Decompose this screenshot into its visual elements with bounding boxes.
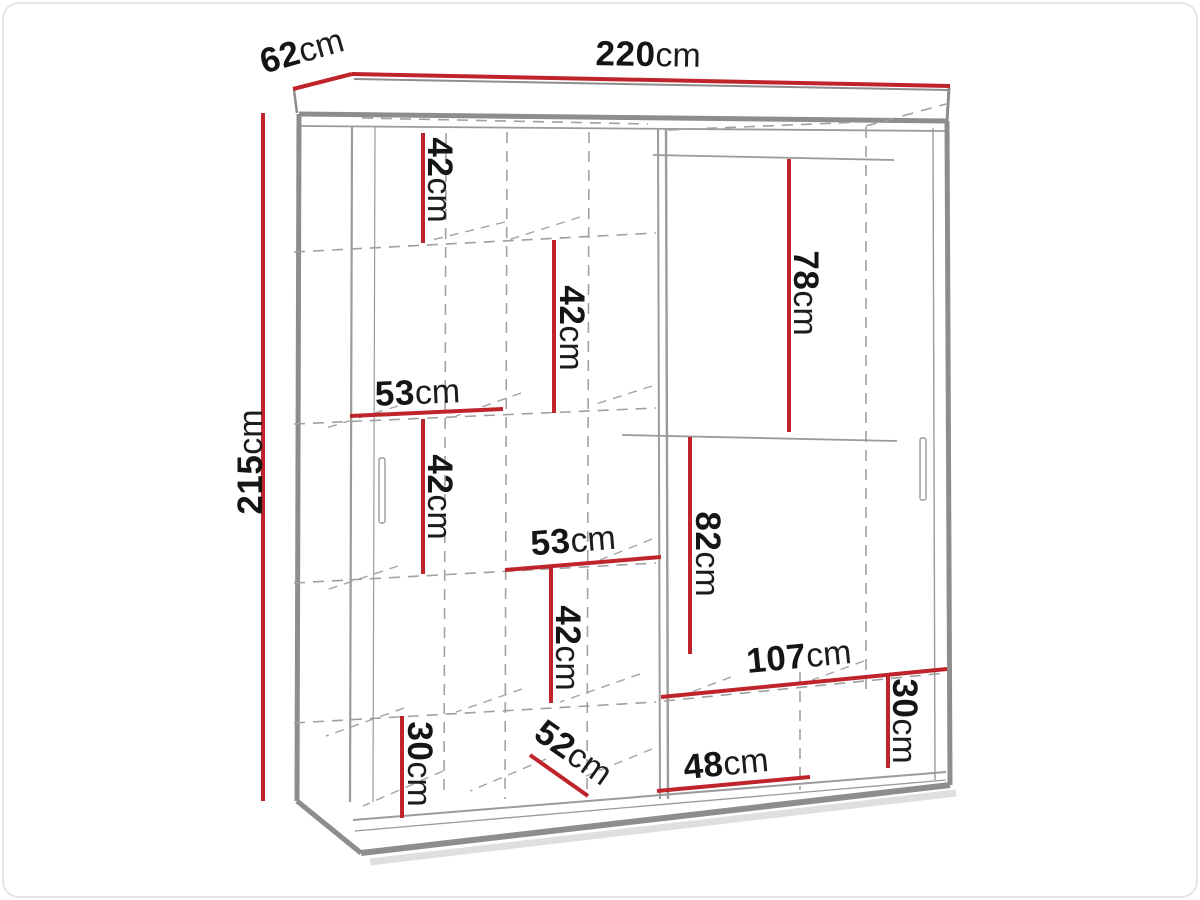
interior-hidden-lines	[294, 104, 946, 806]
door-handles	[379, 438, 926, 523]
depth-dash	[508, 217, 580, 240]
dim-label-height-215: 215cm	[231, 409, 270, 514]
depth-dash	[326, 708, 404, 736]
bottom-left-corner-edge	[297, 801, 361, 853]
top-inner-line	[301, 126, 945, 131]
partition-dash-3	[587, 132, 589, 797]
diagram-canvas: 62cm 220cm 215cm 42cm 42cm 53cm 42cm 53c…	[0, 0, 1200, 900]
dim-label-42-lower-mid: 42cm	[548, 605, 587, 690]
left-door-handle-icon	[379, 458, 385, 523]
dim-label-depth-62: 62cm	[255, 20, 348, 81]
depth-dash	[326, 566, 398, 590]
dim-line-depth-62	[293, 74, 352, 89]
dim-label-107-right: 107cm	[745, 632, 853, 681]
right-outer-edge	[947, 121, 950, 785]
depth-dash	[470, 759, 546, 791]
dim-label-30-bottom-right: 30cm	[885, 678, 924, 763]
dim-label-48-right: 48cm	[682, 740, 771, 787]
left-outer-edge	[297, 114, 299, 801]
depth-dash	[456, 689, 522, 712]
dim-label-82-right: 82cm	[688, 511, 727, 596]
top-left-corner-edge	[294, 90, 297, 113]
right-top-shelf-line	[653, 155, 894, 160]
depth-dash	[432, 222, 505, 240]
dimension-labels: 62cm 220cm 215cm 42cm 42cm 53cm 42cm 53c…	[231, 20, 924, 806]
shelf-dash-1	[294, 233, 656, 252]
dim-label-30-bottom-left: 30cm	[400, 721, 439, 806]
floor-shadow	[370, 793, 956, 862]
door-overlap-line	[658, 128, 660, 799]
dim-label-42-upper-mid: 42cm	[552, 285, 591, 370]
dim-label-width-220: 220cm	[595, 34, 701, 75]
wardrobe-dimension-diagram: 62cm 220cm 215cm 42cm 42cm 53cm 42cm 53c…	[0, 0, 1200, 900]
dim-label-78-right: 78cm	[786, 250, 825, 335]
dim-label-53-mid: 53cm	[529, 518, 617, 564]
depth-dash	[668, 677, 731, 701]
dimension-lines	[263, 74, 950, 818]
wardrobe-carcass	[294, 79, 956, 862]
dim-label-42-top-left: 42cm	[420, 137, 459, 222]
dim-label-52-depth: 52cm	[527, 712, 619, 793]
left-door-stile	[350, 127, 352, 802]
partition-dash-2	[505, 132, 507, 799]
left-door-stile-inner	[373, 127, 375, 802]
right-door-stile-inner	[933, 128, 935, 780]
right-door-handle-icon	[920, 438, 926, 500]
top-right-depth-edge	[947, 88, 949, 121]
shelf-dash-3	[294, 563, 656, 583]
dim-label-42-mid-left: 42cm	[420, 454, 459, 539]
top-front-edge	[299, 114, 947, 121]
depth-dash	[596, 386, 652, 404]
right-mid-shelf-line	[622, 435, 897, 441]
dim-label-53-left: 53cm	[374, 371, 461, 414]
